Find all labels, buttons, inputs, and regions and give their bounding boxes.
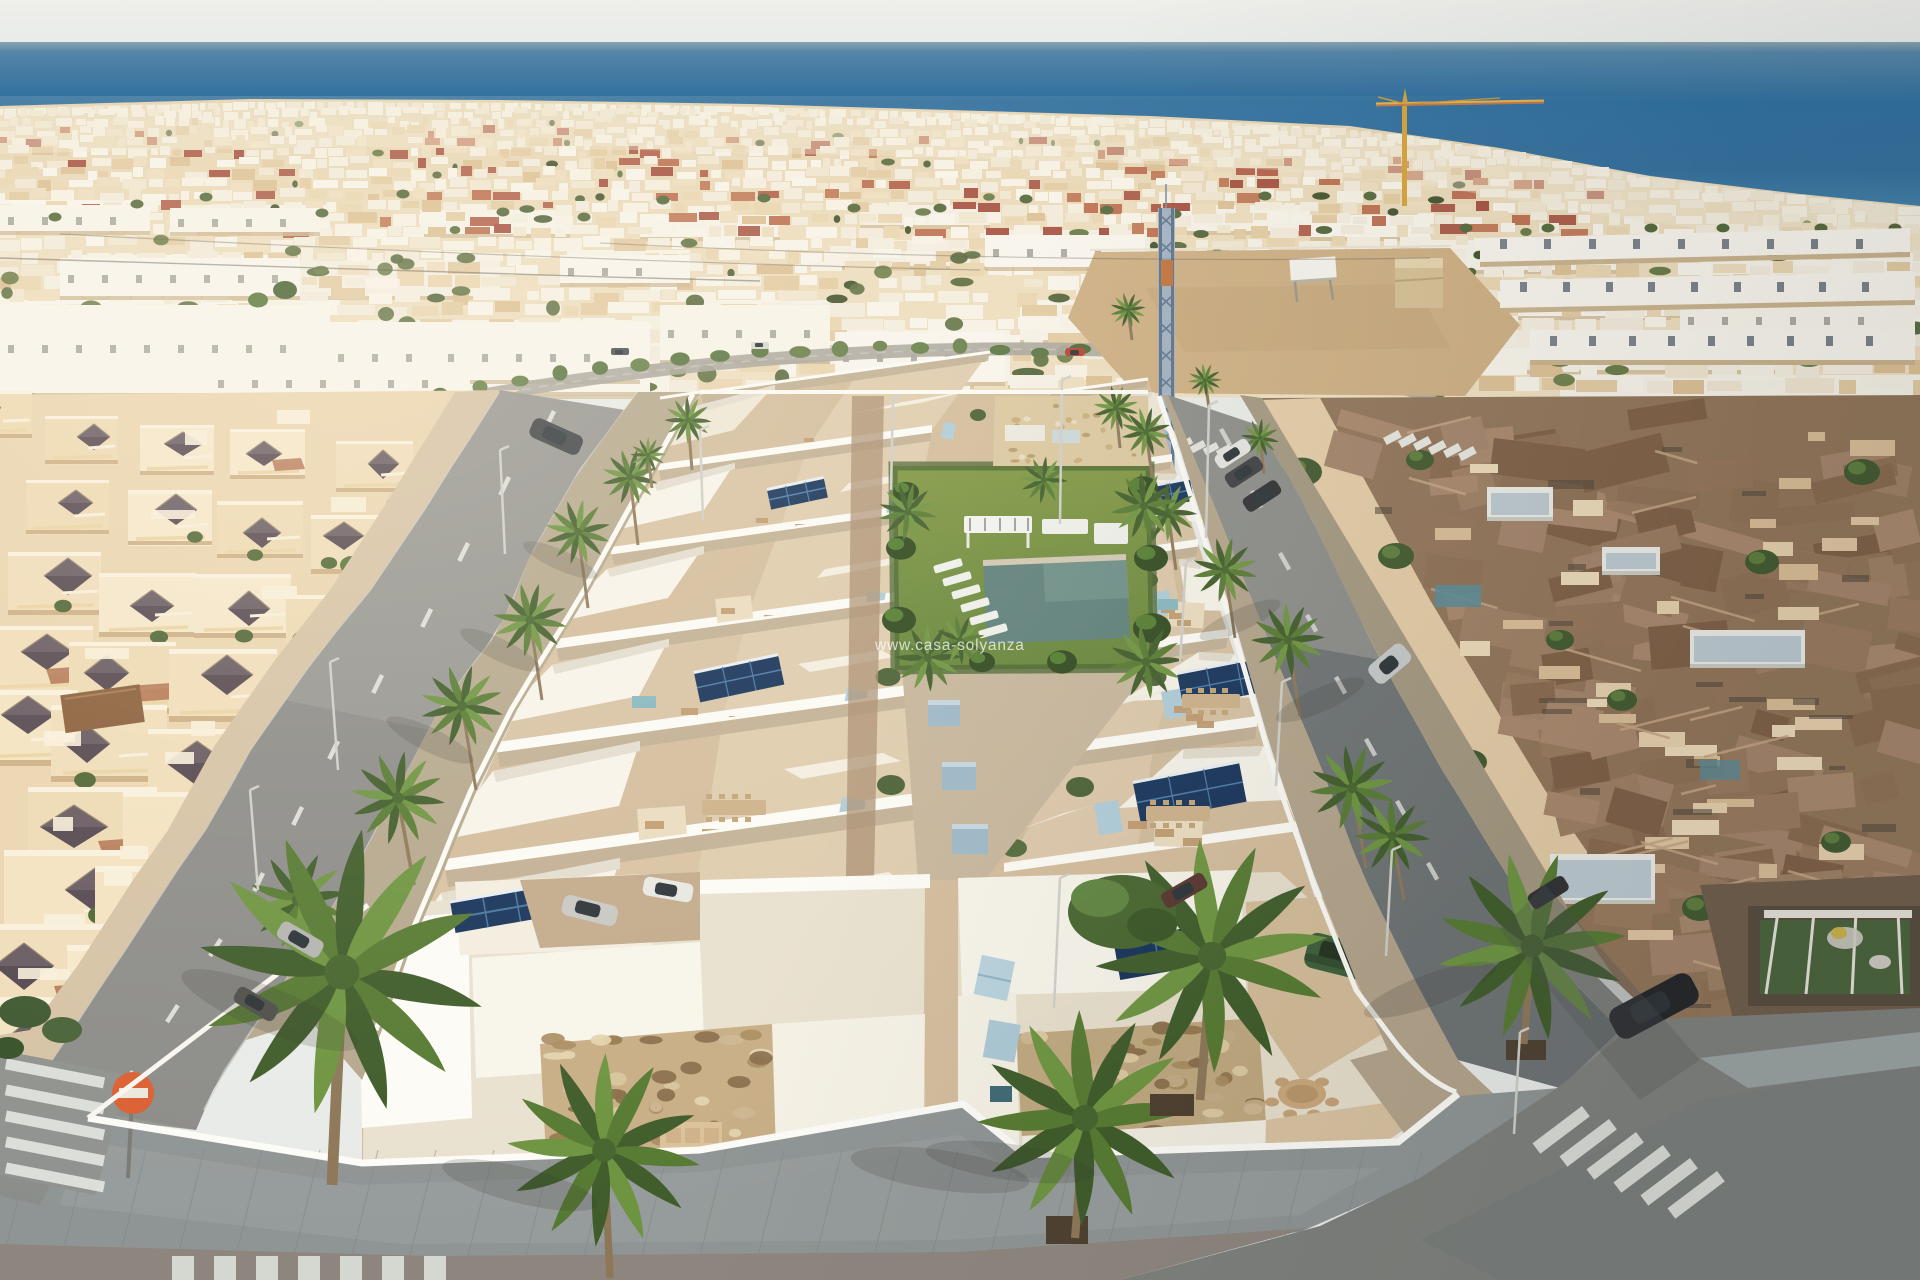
svg-text:www.casa-solyanza: www.casa-solyanza	[874, 637, 1025, 654]
